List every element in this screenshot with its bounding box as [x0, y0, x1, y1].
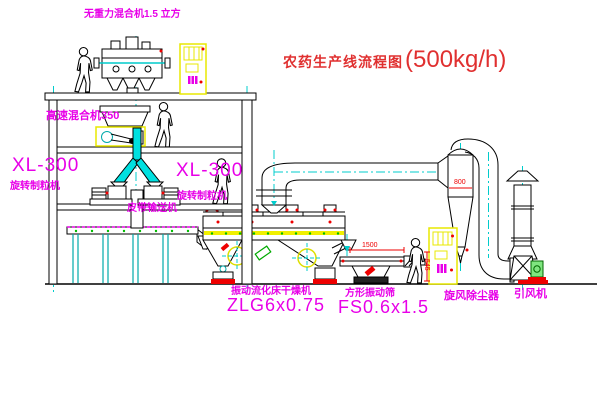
label-granulator-center-name: 旋转制粒机 — [177, 192, 227, 202]
granulator-left — [90, 182, 132, 205]
label-sieve-model: FS0.6x1.5 — [338, 298, 429, 316]
person-icon — [155, 103, 172, 147]
title-text: 农药生产线流程图 — [283, 54, 403, 70]
title-capacity: (500kg/h) — [405, 46, 506, 73]
label-cyclone: 旋风除尘器 — [444, 291, 499, 302]
control-cabinet-top — [180, 44, 206, 94]
label-belt-conveyor: 皮带输送机 — [127, 204, 177, 214]
dimension-sieve-length: 1500 — [362, 242, 378, 249]
flow-diagram: 农药生产线流程图(500kg/h) 无重力混合机1.5 立方 高速混合机350 … — [0, 0, 600, 403]
crosshair-marker — [228, 247, 316, 267]
label-granulator-left-name: 旋转制粒机 — [10, 182, 60, 192]
label-granulator-center-model: XL-300 — [176, 161, 243, 180]
label-dryer-model: ZLG6x0.75 — [227, 296, 325, 314]
belt-conveyor — [67, 227, 198, 283]
label-gravity-free-mixer: 无重力混合机1.5 立方 — [84, 10, 181, 20]
label-high-speed-mixer: 高速混合机350 — [46, 111, 119, 122]
fluid-bed-dryer — [197, 205, 346, 284]
induced-draft-fan — [510, 256, 548, 284]
gravity-free-mixer — [94, 37, 170, 93]
exhaust-duct — [256, 156, 448, 213]
granulator-right — [138, 182, 180, 205]
page-title: 农药生产线流程图(500kg/h) — [283, 46, 506, 74]
dimension-cyclone: 800 — [454, 179, 466, 186]
person-icon — [75, 48, 92, 92]
label-granulator-left-model: XL-300 — [12, 156, 79, 175]
dimension-sieve-height: 545 — [423, 259, 430, 271]
label-fan: 引风机 — [514, 289, 547, 300]
control-cabinet-right — [429, 228, 457, 284]
